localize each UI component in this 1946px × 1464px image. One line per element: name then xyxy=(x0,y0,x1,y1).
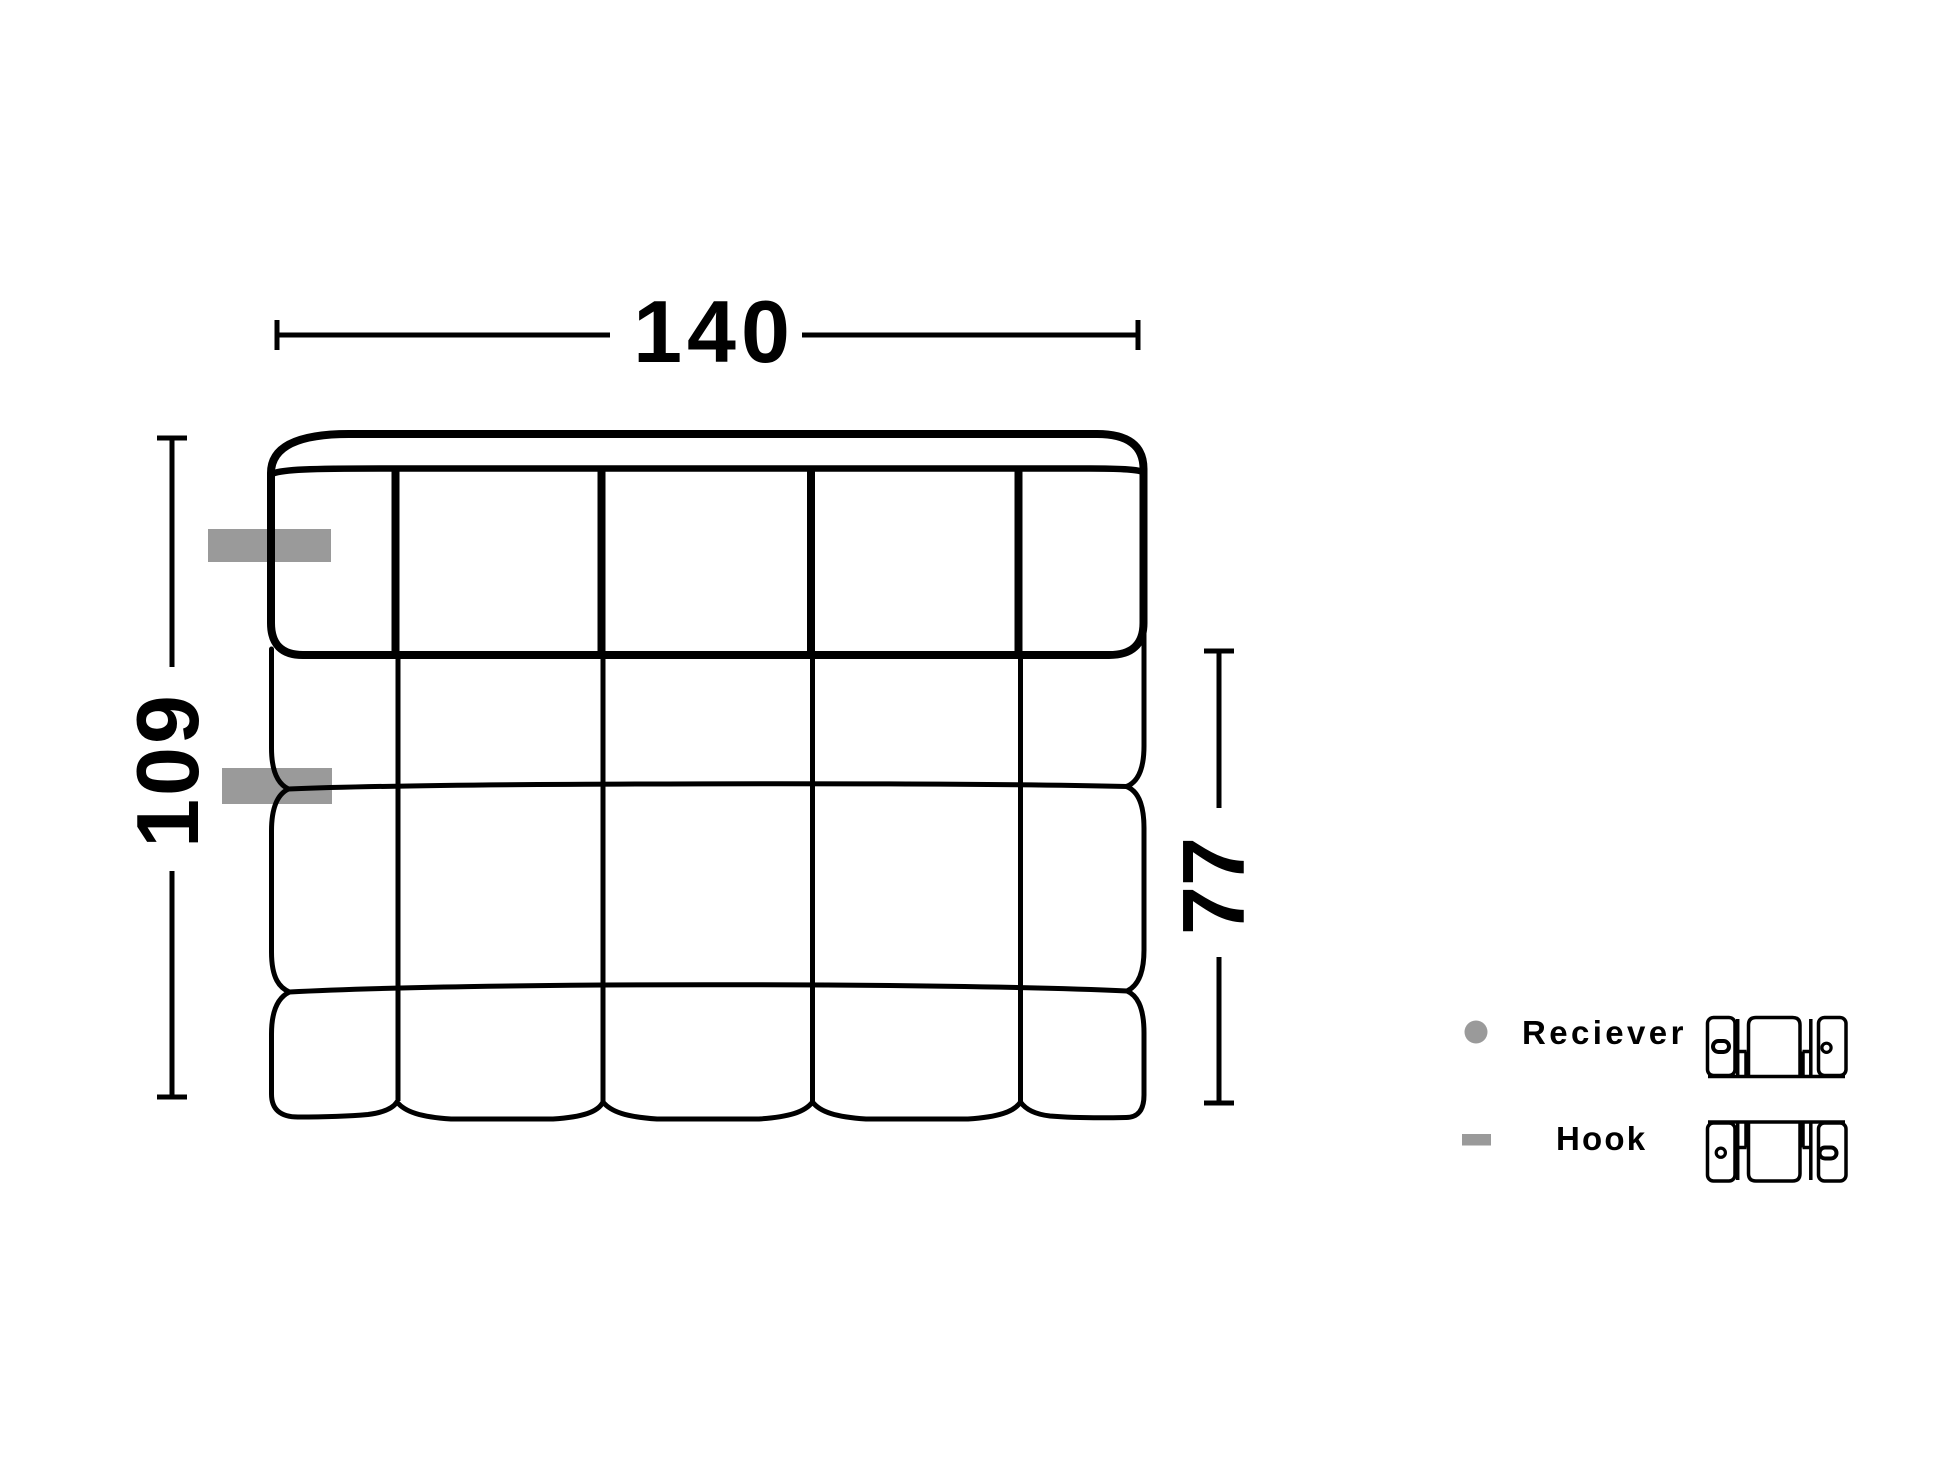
svg-text:109: 109 xyxy=(118,692,217,848)
svg-text:Reciever: Reciever xyxy=(1522,1014,1687,1051)
svg-text:Hook: Hook xyxy=(1556,1120,1647,1157)
svg-text:77: 77 xyxy=(1164,837,1263,935)
svg-text:140: 140 xyxy=(633,282,795,381)
